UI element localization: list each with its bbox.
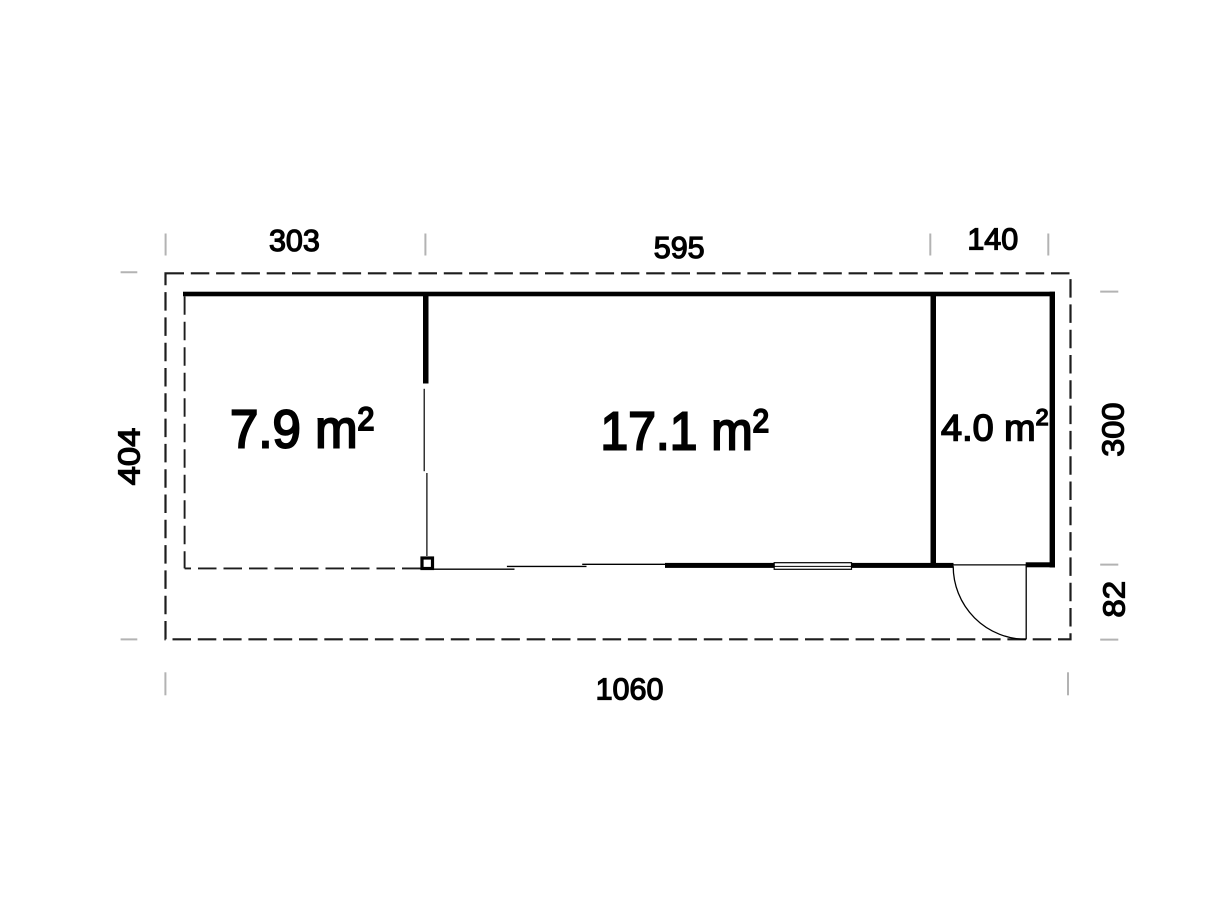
svg-text:17.1 m2: 17.1 m2	[601, 402, 770, 462]
svg-text:82: 82	[1098, 581, 1132, 618]
svg-text:404: 404	[113, 428, 147, 486]
svg-text:7.9 m2: 7.9 m2	[230, 399, 374, 459]
svg-text:300: 300	[1096, 403, 1130, 457]
svg-text:140: 140	[967, 222, 1018, 256]
svg-text:303: 303	[269, 224, 320, 258]
svg-text:1060: 1060	[596, 673, 664, 707]
svg-text:595: 595	[654, 231, 705, 265]
svg-text:4.0 m2: 4.0 m2	[941, 404, 1049, 448]
